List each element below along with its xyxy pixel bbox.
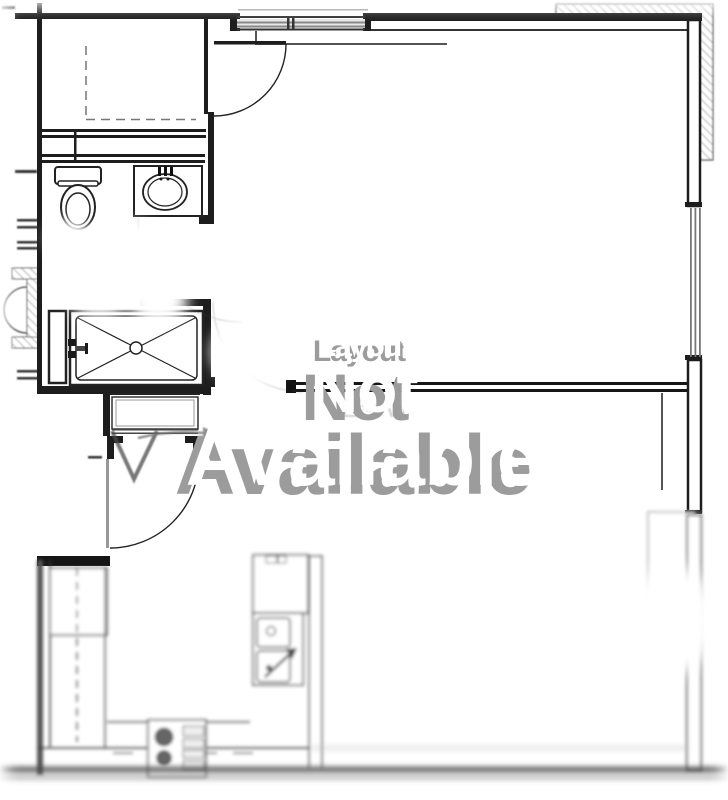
- bottom-exterior-wall-blurred: [0, 748, 728, 779]
- kitchen-sink-icon: [253, 613, 303, 685]
- kitchen-blurred: [37, 512, 701, 777]
- interior-door-top: [214, 41, 286, 116]
- floor-plan-image: Earvi Layout Not Available: [0, 0, 728, 800]
- refrigerator-icon: [253, 555, 308, 613]
- toilet: [55, 167, 101, 229]
- closet-dashed-rod: [86, 46, 196, 120]
- window-top: [237, 9, 368, 31]
- bathroom-sink-vanity: [134, 166, 202, 216]
- watermark-line-3: Available: [0, 414, 728, 498]
